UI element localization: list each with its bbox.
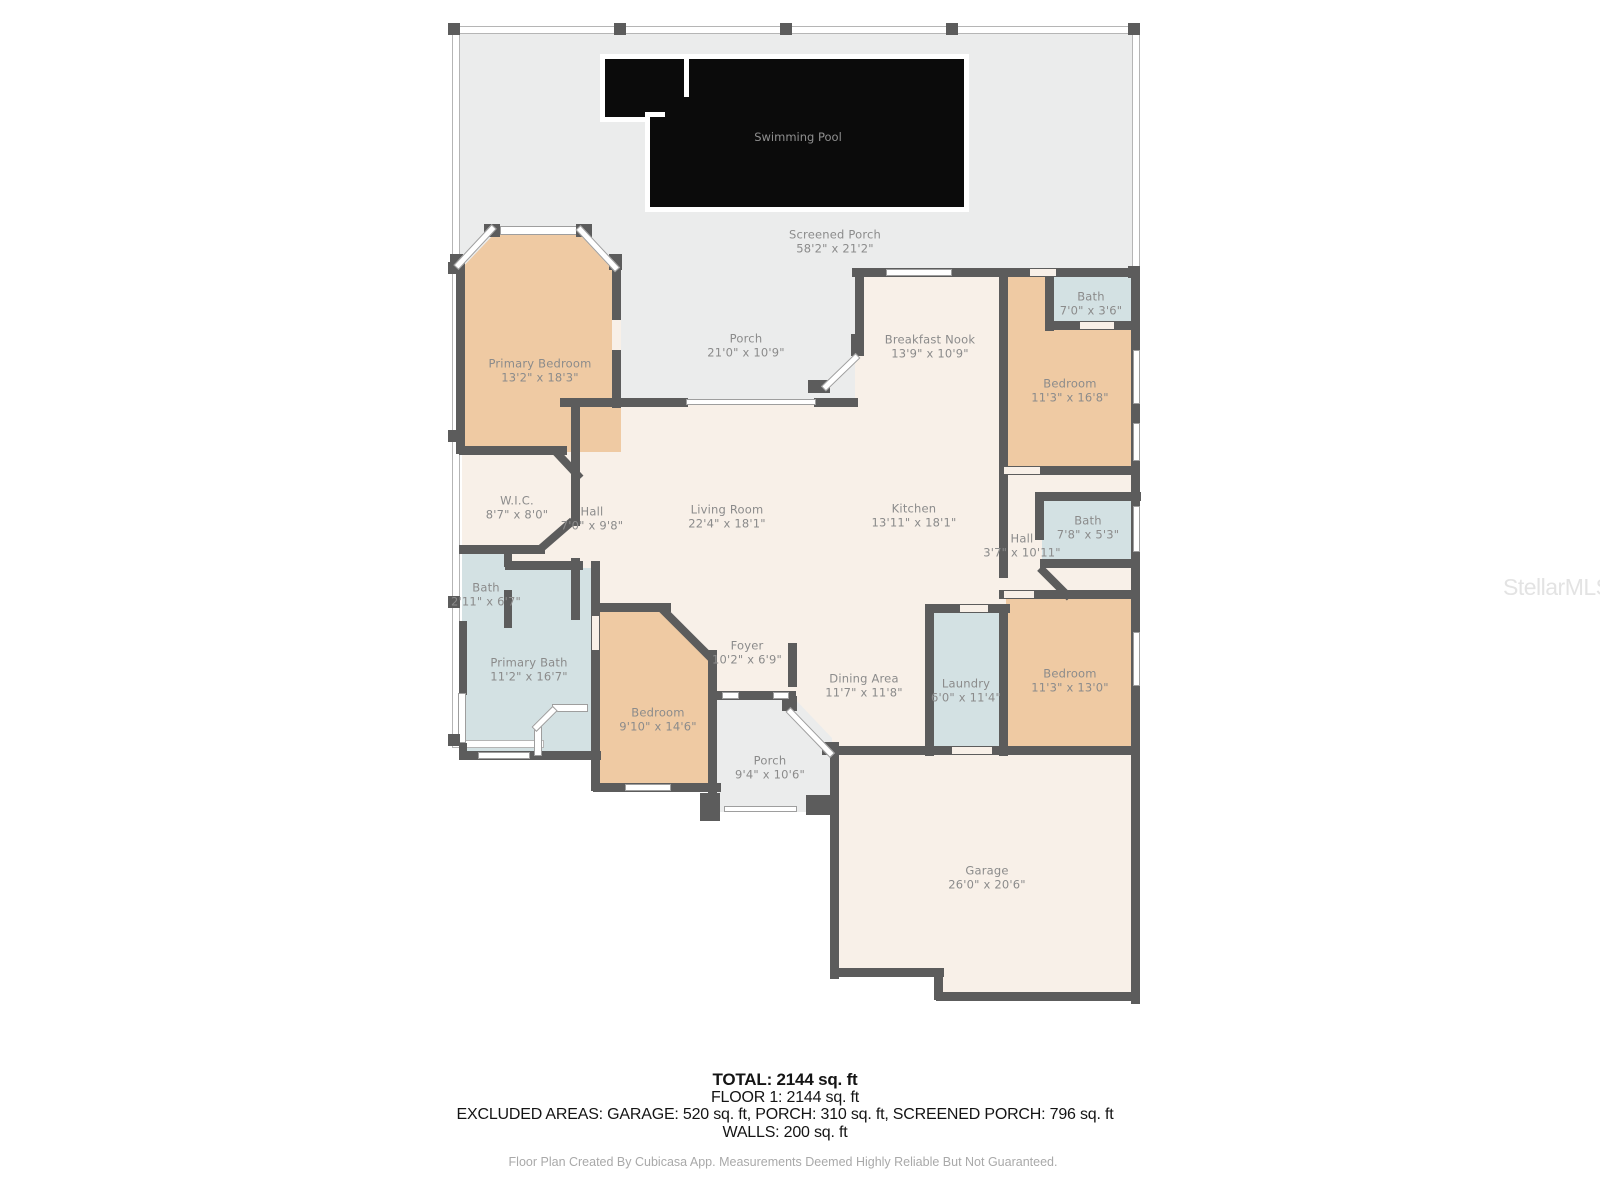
room-label-bath-top-right: Bath7'0" x 3'6" xyxy=(1060,291,1123,318)
room-label-screened-porch: Screened Porch58'2" x 21'2" xyxy=(789,229,881,256)
total-area-text: TOTAL: 2144 sq. ft xyxy=(385,1071,1185,1089)
floor-plan-page: Screened Porch58'2" x 21'2" Swimming Poo… xyxy=(0,0,1600,1200)
window xyxy=(773,692,789,699)
screen-wall xyxy=(452,26,1140,34)
wall-segment xyxy=(1040,559,1140,568)
room-label-hall-right: Hall3'7" x 10'11" xyxy=(983,533,1061,560)
wall-segment xyxy=(505,561,583,570)
window xyxy=(1133,506,1140,552)
wall-post xyxy=(614,23,626,35)
wall-segment xyxy=(1035,492,1141,501)
wall-post xyxy=(1128,23,1140,35)
room-label-bath-right: Bath7'8" x 5'3" xyxy=(1057,515,1120,542)
room-label-bedroom-right-upper: Bedroom11'3" x 16'8" xyxy=(1031,378,1109,405)
wall-segment xyxy=(936,992,1140,1001)
room-floor-primary-bedroom xyxy=(459,231,621,452)
wall-segment xyxy=(459,446,567,455)
wall-post xyxy=(448,23,460,35)
window xyxy=(1133,350,1140,404)
wall-segment xyxy=(830,968,944,977)
window xyxy=(1133,632,1140,686)
wall-segment xyxy=(830,753,839,979)
door-opening xyxy=(952,747,992,754)
wall-segment xyxy=(851,334,864,356)
window xyxy=(625,784,671,791)
door-opening xyxy=(592,616,599,650)
room-label-bedroom-bottom: Bedroom9'10" x 14'6" xyxy=(619,707,697,734)
room-label-breakfast-nook: Breakfast Nook13'9" x 10'9" xyxy=(885,334,976,361)
window xyxy=(724,806,797,812)
room-label-bedroom-right-lower: Bedroom11'3" x 13'0" xyxy=(1031,668,1109,695)
wall-segment xyxy=(459,621,467,695)
room-label-bath-left: Bath2'11" x 6'7" xyxy=(451,582,521,609)
window xyxy=(500,226,580,235)
room-label-porch-back: Porch21'0" x 10'9" xyxy=(707,333,785,360)
window xyxy=(722,692,739,699)
wall-post xyxy=(1128,266,1140,278)
wall-post xyxy=(946,23,958,35)
wall-segment xyxy=(855,273,864,341)
room-label-wic: W.I.C.8'7" x 8'0" xyxy=(486,495,549,522)
room-label-living-room: Living Room22'4" x 18'1" xyxy=(688,504,766,531)
room-label-primary-bath: Primary Bath11'2" x 16'7" xyxy=(490,657,568,684)
door-opening xyxy=(1004,467,1040,474)
wall-segment xyxy=(459,545,545,554)
wall-segment xyxy=(612,350,621,408)
window xyxy=(886,269,952,276)
room-label-hall-left: Hall7'0" x 9'8" xyxy=(561,506,624,533)
pool-divider xyxy=(684,59,689,97)
room-label-foyer: Foyer10'2" x 6'9" xyxy=(712,640,782,667)
excluded-area-text: EXCLUDED AREAS: GARAGE: 520 sq. ft, PORC… xyxy=(385,1106,1185,1124)
room-label-porch-front: Porch9'4" x 10'6" xyxy=(735,755,805,782)
door-opening xyxy=(612,320,621,350)
screen-wall xyxy=(1132,26,1140,276)
room-label-garage: Garage26'0" x 20'6" xyxy=(948,865,1026,892)
room-label-swimming-pool: Swimming Pool xyxy=(754,130,842,144)
door-opening xyxy=(1004,591,1034,598)
window xyxy=(686,399,816,405)
room-label-dining-area: Dining Area11'7" x 11'8" xyxy=(825,673,903,700)
window xyxy=(478,752,530,759)
wall-segment xyxy=(788,643,797,687)
room-label-primary-bedroom: Primary Bedroom13'2" x 18'3" xyxy=(488,358,591,385)
area-summary: TOTAL: 2144 sq. ft FLOOR 1: 2144 sq. ft … xyxy=(385,1071,1185,1141)
door-opening xyxy=(1080,322,1114,329)
credit-text: Floor Plan Created By Cubicasa App. Meas… xyxy=(383,1155,1183,1169)
room-label-kitchen: Kitchen13'11" x 18'1" xyxy=(871,503,956,530)
wall-post xyxy=(448,430,460,442)
pool-step xyxy=(645,112,665,117)
wall-post xyxy=(448,734,460,746)
window xyxy=(1133,423,1140,461)
wall-segment xyxy=(456,262,465,454)
wall-segment xyxy=(700,793,720,821)
swimming-pool xyxy=(605,59,652,117)
floor1-area-text: FLOOR 1: 2144 sq. ft xyxy=(385,1089,1185,1107)
room-label-laundry: Laundry6'0" x 11'4" xyxy=(931,678,1001,705)
wall-segment xyxy=(814,398,858,407)
door-opening xyxy=(1030,269,1056,276)
wall-post xyxy=(780,23,792,35)
stellar-mls-watermark: StellarMLS xyxy=(1503,574,1600,601)
wall-segment xyxy=(708,650,717,793)
door-opening xyxy=(960,605,988,612)
wall-segment xyxy=(591,561,600,791)
walls-area-text: WALLS: 200 sq. ft xyxy=(385,1124,1185,1142)
